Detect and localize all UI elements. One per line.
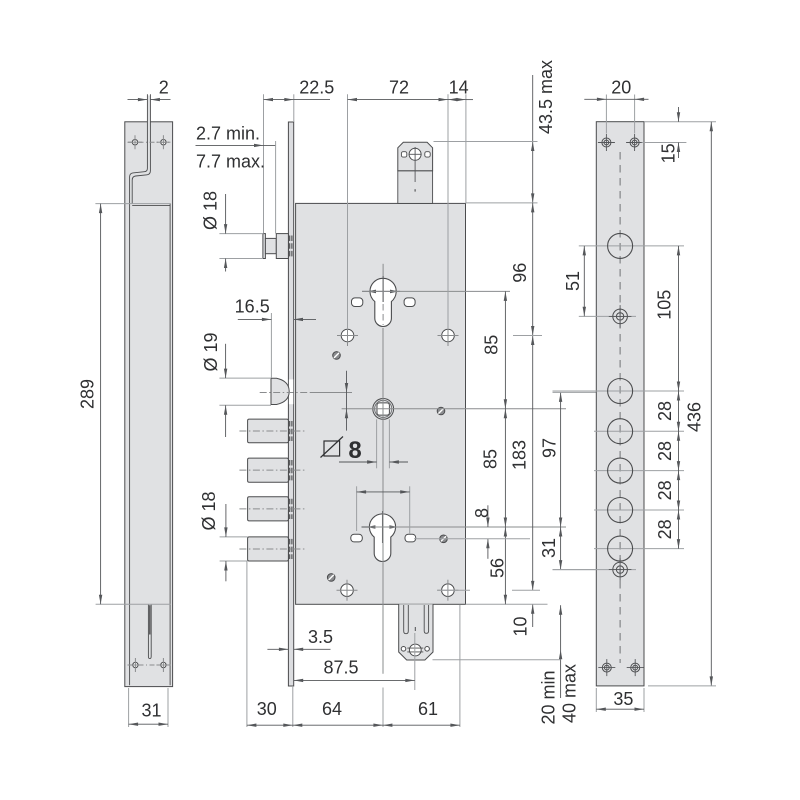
svg-text:28: 28 [655,480,675,500]
svg-text:Ø 18: Ø 18 [199,491,219,530]
svg-text:15: 15 [659,143,679,163]
svg-text:7.7 max.: 7.7 max. [196,151,265,171]
svg-text:72: 72 [389,78,409,98]
svg-text:28: 28 [655,519,675,539]
svg-text:10: 10 [511,616,531,636]
svg-text:Ø 19: Ø 19 [201,332,221,371]
svg-text:20: 20 [611,77,631,97]
svg-text:43.5 max: 43.5 max [536,60,556,134]
svg-text:20 min: 20 min [539,670,559,724]
svg-text:436: 436 [685,402,705,432]
svg-text:30: 30 [257,699,277,719]
svg-text:87.5: 87.5 [323,658,358,678]
svg-text:16.5: 16.5 [235,296,270,316]
svg-text:28: 28 [655,401,675,421]
svg-text:85: 85 [481,335,501,355]
svg-text:51: 51 [563,271,583,291]
svg-text:31: 31 [539,538,559,558]
svg-text:35: 35 [613,689,633,709]
svg-text:14: 14 [449,78,469,98]
svg-text:183: 183 [510,440,530,470]
svg-text:96: 96 [510,263,530,283]
svg-text:8: 8 [472,508,492,518]
svg-text:105: 105 [655,290,675,320]
svg-text:2.7 min.: 2.7 min. [196,123,260,143]
svg-text:289: 289 [78,379,98,409]
svg-text:3.5: 3.5 [308,627,333,647]
svg-text:8: 8 [348,437,361,464]
svg-text:28: 28 [655,441,675,461]
svg-text:31: 31 [141,701,161,721]
svg-text:22.5: 22.5 [299,78,334,98]
svg-text:Ø 18: Ø 18 [201,191,221,230]
svg-text:40 max: 40 max [560,664,580,723]
svg-text:61: 61 [418,699,438,719]
svg-text:2: 2 [159,78,169,98]
svg-text:85: 85 [481,449,501,469]
svg-text:56: 56 [488,558,508,578]
svg-text:64: 64 [322,699,342,719]
svg-text:97: 97 [540,438,560,458]
